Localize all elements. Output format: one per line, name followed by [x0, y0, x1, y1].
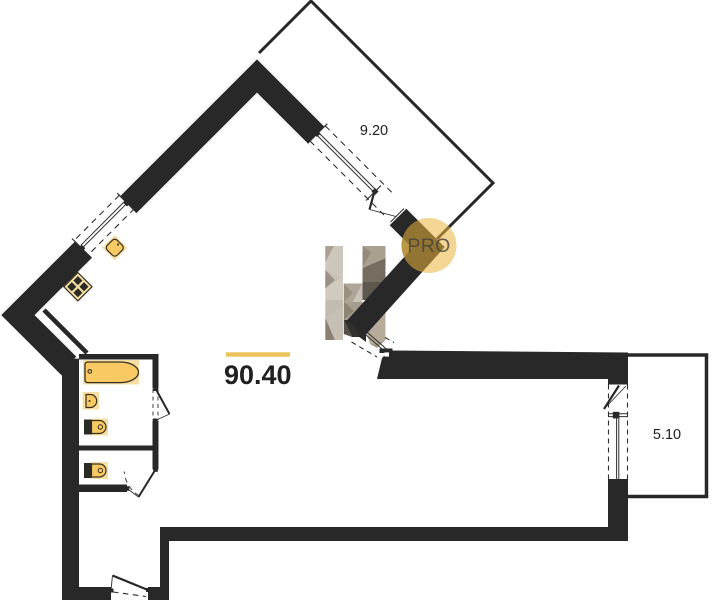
svg-text:PRO: PRO — [407, 235, 450, 257]
svg-text:9.20: 9.20 — [360, 123, 388, 139]
svg-text:5.10: 5.10 — [653, 427, 681, 443]
svg-text:90.40: 90.40 — [224, 360, 292, 390]
